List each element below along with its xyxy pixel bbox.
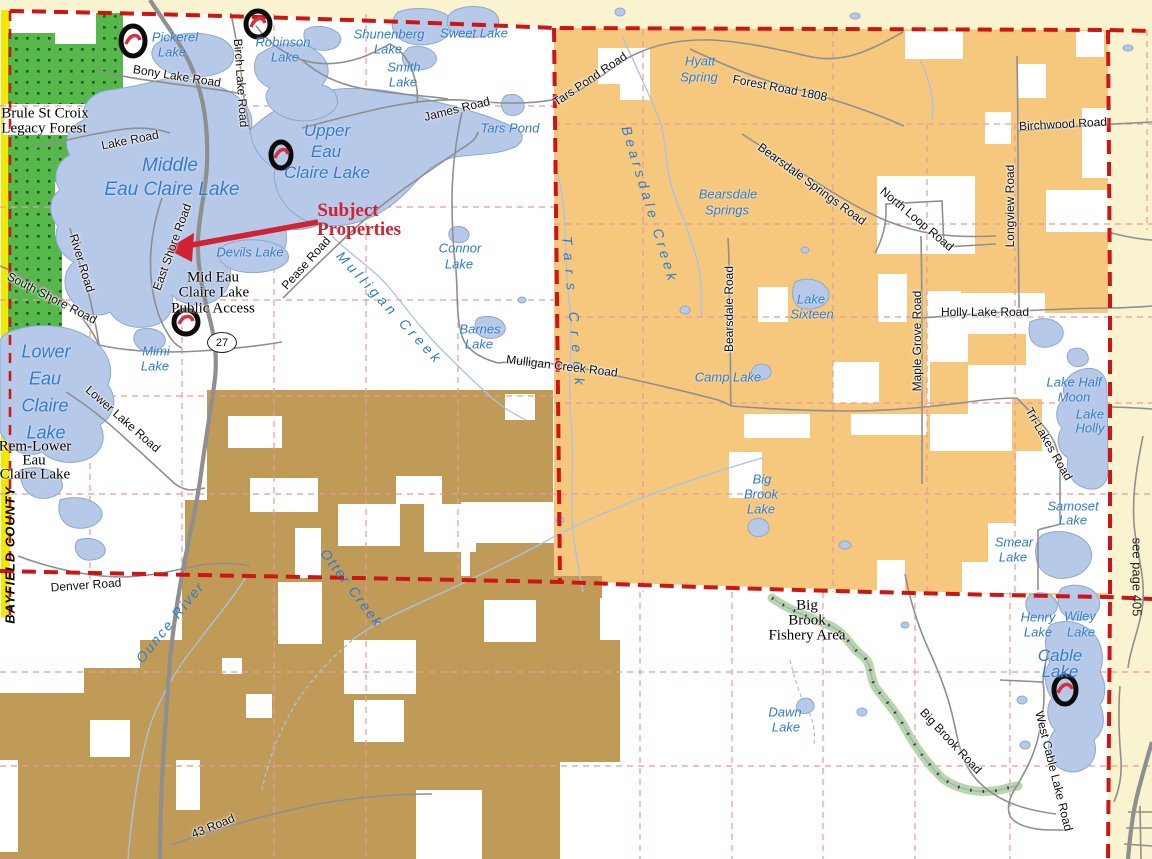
- middle-eau-claire-lake-label: Eau Claire Lake: [104, 179, 239, 201]
- barnes-lake-label: Lake: [465, 337, 493, 352]
- shunenberg-lake-label: Lake: [374, 42, 402, 57]
- henry-lake-label: Henry: [1021, 610, 1056, 625]
- smear-lake-label: Lake: [999, 550, 1027, 565]
- smith-lake-label: Lake: [389, 75, 417, 90]
- big-brook-lake-label: Big: [753, 472, 772, 487]
- public-access-label: Claire Lake: [179, 285, 249, 302]
- bearsdale-springs-label: Bearsdale: [699, 187, 758, 202]
- pickerel-lake-label: Pickerel: [152, 30, 198, 45]
- smear-lake-label: Smear: [995, 535, 1033, 550]
- wiley-lake-label: Lake: [1067, 625, 1095, 640]
- upper-eau-claire-lake-label: Eau: [311, 142, 341, 162]
- upper-eau-claire-lake-label: Claire Lake: [284, 163, 370, 183]
- dawn-lake-label: Dawn: [768, 705, 801, 720]
- big-brook-lake-label: Lake: [747, 502, 775, 517]
- bearsdale-road-label: Bearsdale Road: [722, 266, 736, 352]
- hyatt-spring-label: Spring: [680, 70, 718, 85]
- outside-county-right-band: [1108, 30, 1152, 859]
- lower-eau-claire-lake-label: Eau: [29, 369, 61, 390]
- samoset-lake-label: Lake: [1059, 513, 1087, 528]
- tars-pond-label: Tars Pond: [481, 121, 540, 136]
- lake-half-moon-label: Lake Half: [1047, 375, 1102, 390]
- lake-holly-label: Lake: [1076, 407, 1104, 422]
- rem-lower-label: Claire Lake: [0, 467, 70, 484]
- fishery-area-label: Fishery Area: [768, 628, 845, 645]
- dawn-lake-label: Lake: [772, 720, 800, 735]
- bayfield-county-label: BAYFIELD COUNTY: [3, 486, 18, 624]
- hyatt-spring-label: Hyatt: [685, 54, 715, 69]
- robinson-lake-label: Robinson: [256, 35, 311, 50]
- see-page-405-label: see page 405: [1130, 538, 1145, 617]
- smith-lake-label: Smith: [387, 60, 420, 75]
- lake-holly-label: Holly: [1076, 421, 1105, 436]
- middle-eau-claire-lake-label: Middle: [142, 155, 198, 177]
- mimi-lake-label: Mimi: [142, 344, 169, 359]
- tars-pond-shape: [502, 94, 525, 115]
- wiley-lake-label: Wiley: [1064, 609, 1096, 624]
- lower-eau-claire-lake-label: Lower: [21, 342, 70, 363]
- plat-map-page: Pickerel Lake Robinson Lake Shunenberg L…: [0, 0, 1152, 859]
- maple-grove-road-label: Maple Grove Road: [910, 291, 924, 392]
- shunenberg-lake-label: Shunenberg: [354, 27, 425, 42]
- robinson-lake-label: Lake: [271, 50, 299, 65]
- lake-sixteen-label: Lake: [797, 292, 825, 307]
- public-access-label: Public Access: [171, 301, 255, 318]
- subject-property-marker: [121, 26, 145, 56]
- barnes-lake-label: Barnes: [459, 322, 500, 337]
- connor-lake-label: Lake: [445, 257, 473, 272]
- connor-lake-label: Connor: [439, 241, 482, 256]
- map-canvas: [0, 0, 1152, 859]
- subject-properties-label: Properties: [317, 219, 401, 241]
- lake-holly-shape: [1067, 348, 1088, 366]
- camp-lake-label: Camp Lake: [695, 370, 761, 385]
- lake-sixteen-label: Sixteen: [790, 307, 833, 322]
- pickerel-lake-label: Lake: [158, 45, 186, 60]
- upper-eau-claire-lake-label: Upper: [304, 121, 350, 141]
- mimi-lake-label: Lake: [141, 359, 169, 374]
- big-brook-lake-label: Brook: [744, 487, 778, 502]
- lower-eau-claire-lake-label: Claire: [21, 396, 68, 417]
- devils-lake-label: Devils Lake: [216, 245, 283, 260]
- cable-lake-label: Lake: [1042, 662, 1079, 682]
- lake-half-moon-shape: [1029, 319, 1063, 348]
- bearsdale-springs-label: Springs: [705, 203, 749, 218]
- holly-lake-road-label: Holly Lake Road: [941, 305, 1029, 319]
- henry-lake-label: Lake: [1024, 625, 1052, 640]
- longview-road-label: Longview Road: [1003, 165, 1017, 248]
- lake-half-moon-label: Moon: [1058, 390, 1091, 405]
- samoset-lake-label: Samoset: [1047, 499, 1098, 514]
- legacy-forest-label: Legacy Forest: [1, 121, 86, 138]
- sweet-lake-label: Sweet Lake: [440, 26, 508, 41]
- highway-27-shield: 27: [207, 332, 237, 353]
